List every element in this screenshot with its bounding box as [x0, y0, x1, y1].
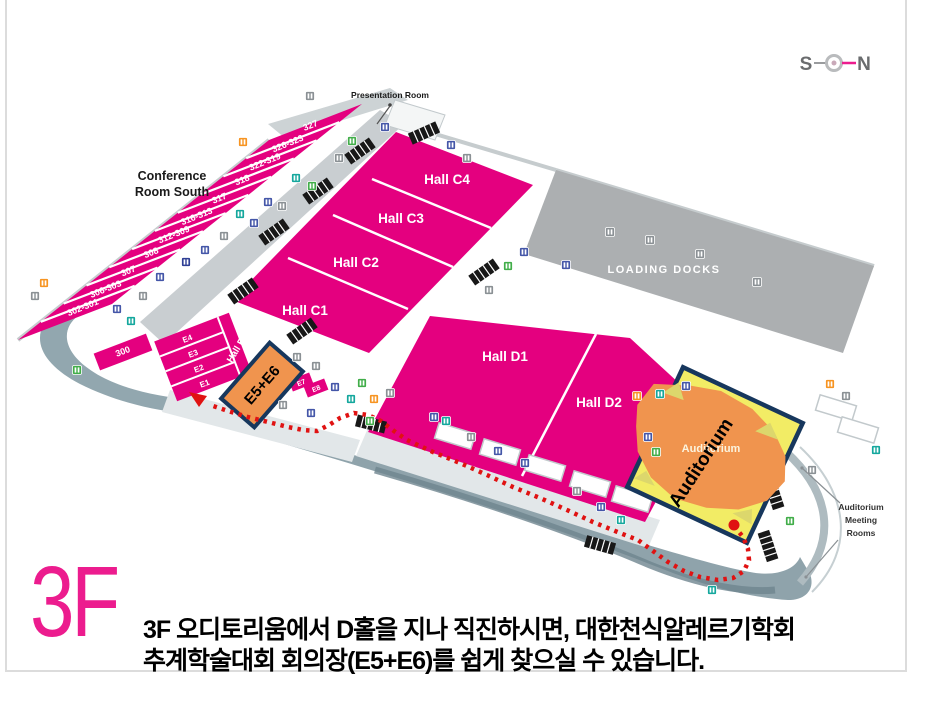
room-300-block: 300: [94, 334, 153, 371]
facility-icon-box: [73, 366, 82, 375]
facility-icon-glyph: [294, 175, 296, 180]
facility-icon-glyph: [266, 199, 268, 204]
facility-icon-glyph: [449, 142, 451, 147]
facility-icon-box: [381, 123, 390, 132]
blue-facility-icon: [331, 383, 340, 392]
gray-facility-icon: [463, 154, 472, 163]
teal-facility-icon: [872, 446, 881, 455]
facility-icon-box: [335, 154, 344, 163]
facility-icon-box: [520, 248, 529, 257]
facility-icon-box: [442, 417, 451, 426]
facility-icon-glyph: [337, 155, 339, 160]
facility-icon-box: [220, 232, 229, 241]
facility-icon-glyph: [472, 434, 474, 439]
facility-icon-box: [467, 433, 476, 442]
gray-facility-icon: [485, 286, 494, 295]
facility-icon-box: [31, 292, 40, 301]
facility-icon-glyph: [578, 488, 580, 493]
facility-icon-glyph: [661, 391, 663, 396]
conference-room-south-line1: Conference: [138, 169, 207, 183]
facility-icon-glyph: [648, 237, 650, 242]
blue-facility-icon: [562, 261, 571, 270]
facility-icon-glyph: [252, 220, 254, 225]
facility-icon-box: [504, 262, 513, 271]
green-facility-icon: [786, 517, 795, 526]
facility-icon-glyph: [283, 203, 285, 208]
gray-facility-icon: [306, 92, 315, 101]
blue-facility-icon: [307, 409, 316, 418]
green-facility-icon: [366, 417, 375, 426]
aud-meeting-rooms-line2: Meeting: [845, 515, 877, 525]
facility-icon-box: [656, 390, 665, 399]
facility-icon-glyph: [452, 142, 454, 147]
facility-icon-glyph: [391, 390, 393, 395]
orange-facility-icon: [633, 392, 642, 401]
facility-icon-box: [386, 389, 395, 398]
orange-facility-icon: [40, 279, 49, 288]
facility-icon-glyph: [386, 124, 388, 129]
facility-icon-glyph: [810, 467, 812, 472]
facility-icon-glyph: [698, 251, 700, 256]
facility-icon-box: [293, 353, 302, 362]
facility-icon-box: [250, 219, 259, 228]
facility-icon-glyph: [828, 381, 830, 386]
gray-facility-icon: [31, 292, 40, 301]
facility-icon-box: [40, 279, 49, 288]
facility-icon-box: [312, 362, 321, 371]
facility-icon-box: [279, 401, 288, 410]
facility-icon-box: [494, 447, 503, 456]
facility-icon-glyph: [847, 393, 849, 398]
green-facility-icon: [73, 366, 82, 375]
facility-icon-glyph: [788, 518, 790, 523]
facility-icon-glyph: [336, 384, 338, 389]
facility-icon-box: [521, 459, 530, 468]
facility-icon-glyph: [333, 384, 335, 389]
facility-icon-glyph: [496, 448, 498, 453]
teal-facility-icon: [442, 417, 451, 426]
facility-icon-box: [872, 446, 881, 455]
facility-icon-glyph: [144, 293, 146, 298]
facility-icon-glyph: [75, 367, 77, 372]
facility-icon-glyph: [654, 449, 656, 454]
facility-icon-box: [347, 395, 356, 404]
facility-icon-glyph: [468, 155, 470, 160]
facility-icon-box: [808, 466, 817, 475]
facility-icon-box: [307, 409, 316, 418]
facility-icon-glyph: [813, 467, 815, 472]
facility-icon-box: [682, 382, 691, 391]
facility-icon-box: [182, 258, 191, 267]
facility-icon-glyph: [222, 233, 224, 238]
facility-icon-glyph: [526, 460, 528, 465]
green-facility-icon: [358, 379, 367, 388]
facility-icon-glyph: [158, 274, 160, 279]
facility-icon-glyph: [469, 434, 471, 439]
facility-icon-box: [644, 433, 653, 442]
facility-icon-glyph: [203, 247, 205, 252]
facility-icon-glyph: [225, 233, 227, 238]
walkway-pavilion: [837, 417, 878, 443]
facility-icon-glyph: [371, 418, 373, 423]
facility-icon-box: [617, 516, 626, 525]
facility-icon-glyph: [564, 262, 566, 267]
facility-icon-box: [278, 202, 287, 211]
facility-icon-glyph: [646, 434, 648, 439]
facility-icon-box: [292, 174, 301, 183]
facility-icon-glyph: [360, 380, 362, 385]
facility-icon-box: [113, 305, 122, 314]
orange-facility-icon: [370, 395, 379, 404]
hall-c3-label: Hall C3: [378, 211, 424, 226]
facility-icon-box: [463, 154, 472, 163]
facility-icon-glyph: [33, 293, 35, 298]
facility-icon-box: [366, 417, 375, 426]
facility-icon-glyph: [368, 418, 370, 423]
facility-icon-glyph: [42, 280, 44, 285]
facility-icon-glyph: [877, 447, 879, 452]
facility-icon-box: [201, 246, 210, 255]
facility-icon-glyph: [444, 418, 446, 423]
facility-icon-box: [753, 278, 762, 287]
facility-icon-glyph: [375, 396, 377, 401]
pavilion-block: [837, 417, 878, 443]
facility-icon-box: [331, 383, 340, 392]
teal-facility-icon: [617, 516, 626, 525]
teal-facility-icon: [127, 317, 136, 326]
facility-icon-glyph: [363, 380, 365, 385]
teal-facility-icon: [347, 395, 356, 404]
facility-icon-glyph: [184, 259, 186, 264]
compass-south-label: S: [800, 54, 813, 75]
hall-c4-label: Hall C4: [424, 172, 470, 187]
aud-meeting-pointer-dot-1: [800, 466, 803, 469]
facility-icon-glyph: [298, 354, 300, 359]
facility-icon-glyph: [619, 517, 621, 522]
facility-icon-box: [696, 250, 705, 259]
facility-icon-glyph: [506, 263, 508, 268]
hall-c2-label: Hall C2: [333, 255, 379, 270]
green-facility-icon: [308, 182, 317, 191]
gray-facility-icon: [573, 487, 582, 496]
facility-icon-glyph: [622, 517, 624, 522]
slide-frame-left: [5, 0, 7, 671]
facility-icon-glyph: [611, 229, 613, 234]
blue-facility-icon: [521, 459, 530, 468]
facility-icon-glyph: [432, 414, 434, 419]
aud-meeting-rooms-line1: Auditorium: [838, 502, 884, 512]
blue-facility-icon: [494, 447, 503, 456]
facility-icon-glyph: [522, 249, 524, 254]
gray-facility-icon: [696, 250, 705, 259]
facility-icon-glyph: [687, 383, 689, 388]
facility-icon-glyph: [350, 138, 352, 143]
compass: S N: [800, 54, 871, 75]
facility-icon-box: [708, 586, 717, 595]
facility-icon-glyph: [435, 414, 437, 419]
teal-facility-icon: [656, 390, 665, 399]
facility-icon-glyph: [684, 383, 686, 388]
facility-icon-glyph: [118, 306, 120, 311]
facility-icon-glyph: [187, 259, 189, 264]
navy-facility-icon: [182, 258, 191, 267]
facility-icon-glyph: [78, 367, 80, 372]
compass-north-label: N: [857, 54, 871, 75]
gray-facility-icon: [606, 228, 615, 237]
facility-icon-box: [308, 182, 317, 191]
facility-icon-box: [430, 413, 439, 422]
facility-icon-glyph: [791, 518, 793, 523]
gray-facility-icon: [386, 389, 395, 398]
blue-facility-icon: [682, 382, 691, 391]
route-start-dot: [729, 520, 740, 531]
facility-icon-glyph: [525, 249, 527, 254]
facility-icon-glyph: [309, 410, 311, 415]
blue-facility-icon: [597, 503, 606, 512]
facility-icon-glyph: [388, 390, 390, 395]
facility-icon-glyph: [602, 504, 604, 509]
facility-icon-glyph: [244, 139, 246, 144]
facility-icon-box: [306, 92, 315, 101]
facility-icon-glyph: [269, 199, 271, 204]
caption-text: 3F 오디토리움에서 D홀을 지나 직진하시면, 대한천식알레르기학회 추계학술…: [143, 615, 913, 677]
facility-icon-glyph: [758, 279, 760, 284]
slide-frame-right: [905, 0, 907, 671]
facility-icon-box: [826, 380, 835, 389]
gray-facility-icon: [646, 236, 655, 245]
facility-icon-glyph: [499, 448, 501, 453]
facility-icon-box: [236, 210, 245, 219]
hall-d2-label: Hall D2: [576, 395, 622, 410]
facility-icon-box: [447, 141, 456, 150]
conference-room-south-line2: Room South: [135, 185, 209, 199]
facility-icon-glyph: [314, 363, 316, 368]
blue-facility-icon: [250, 219, 259, 228]
caption-line2: 추계학술대회 회의장(E5+E6)를 쉽게 찾으실 수 있습니다.: [143, 646, 913, 677]
escalator-icon: [468, 258, 499, 285]
presentation-room-label: Presentation Room: [351, 90, 429, 100]
facility-icon-glyph: [132, 318, 134, 323]
facility-icon-glyph: [635, 393, 637, 398]
gray-facility-icon: [139, 292, 148, 301]
facility-icon-glyph: [255, 220, 257, 225]
facility-icon-box: [606, 228, 615, 237]
gray-facility-icon: [753, 278, 762, 287]
facility-icon-box: [646, 236, 655, 245]
facility-icon-glyph: [608, 229, 610, 234]
facility-icon-glyph: [844, 393, 846, 398]
facility-icon-glyph: [651, 237, 653, 242]
caption-line1: 3F 오디토리움에서 D홀을 지나 직진하시면, 대한천식알레르기학회: [143, 615, 913, 646]
escalator-icon: [758, 530, 779, 562]
aud-meeting-pointer-dot-2: [804, 575, 807, 578]
facility-icon-glyph: [831, 381, 833, 386]
facility-icon-glyph: [308, 93, 310, 98]
facility-icon-glyph: [353, 138, 355, 143]
facility-icon-glyph: [297, 175, 299, 180]
teal-facility-icon: [236, 210, 245, 219]
facility-icon-box: [633, 392, 642, 401]
facility-icon-box: [573, 487, 582, 496]
facility-icon-box: [370, 395, 379, 404]
green-facility-icon: [348, 137, 357, 146]
blue-facility-icon: [381, 123, 390, 132]
facility-icon-glyph: [349, 396, 351, 401]
gray-facility-icon: [279, 401, 288, 410]
blue-facility-icon: [264, 198, 273, 207]
facility-icon-glyph: [874, 447, 876, 452]
gray-facility-icon: [808, 466, 817, 475]
facility-icon-glyph: [45, 280, 47, 285]
facility-icon-glyph: [129, 318, 131, 323]
teal-facility-icon: [708, 586, 717, 595]
facility-icon-glyph: [161, 274, 163, 279]
facility-icon-glyph: [649, 434, 651, 439]
gray-facility-icon: [312, 362, 321, 371]
facility-icon-box: [597, 503, 606, 512]
facility-icon-box: [127, 317, 136, 326]
escalator-body: [468, 258, 499, 285]
facility-icon-box: [842, 392, 851, 401]
facility-icon-glyph: [310, 183, 312, 188]
facility-icon-glyph: [284, 402, 286, 407]
orange-facility-icon: [239, 138, 248, 147]
facility-icon-glyph: [523, 460, 525, 465]
orange-facility-icon: [826, 380, 835, 389]
blue-facility-icon: [201, 246, 210, 255]
facility-icon-box: [562, 261, 571, 270]
facility-icon-glyph: [340, 155, 342, 160]
blue-facility-icon: [430, 413, 439, 422]
facility-icon-glyph: [280, 203, 282, 208]
facility-icon-glyph: [115, 306, 117, 311]
facility-icon-box: [139, 292, 148, 301]
facility-icon-glyph: [465, 155, 467, 160]
loading-docks-block: LOADING DOCKS: [524, 170, 874, 353]
compass-center-dot: [832, 61, 837, 66]
facility-icon-glyph: [658, 391, 660, 396]
facility-icon-glyph: [657, 449, 659, 454]
facility-icon-glyph: [490, 287, 492, 292]
green-facility-icon: [652, 448, 661, 457]
gray-facility-icon: [335, 154, 344, 163]
facility-icon-glyph: [295, 354, 297, 359]
blue-facility-icon: [113, 305, 122, 314]
facility-icon-box: [652, 448, 661, 457]
loading-docks-label: LOADING DOCKS: [608, 264, 721, 276]
gray-facility-icon: [842, 392, 851, 401]
facility-icon-glyph: [755, 279, 757, 284]
blue-facility-icon: [447, 141, 456, 150]
gray-facility-icon: [467, 433, 476, 442]
facility-icon-glyph: [352, 396, 354, 401]
facility-icon-glyph: [281, 402, 283, 407]
facility-icon-glyph: [238, 211, 240, 216]
facility-icon-box: [485, 286, 494, 295]
gray-facility-icon: [220, 232, 229, 241]
blue-facility-icon: [520, 248, 529, 257]
gray-facility-icon: [293, 353, 302, 362]
facility-icon-glyph: [701, 251, 703, 256]
facility-icon-glyph: [713, 587, 715, 592]
facility-icon-box: [264, 198, 273, 207]
facility-icon-box: [786, 517, 795, 526]
blue-facility-icon: [156, 273, 165, 282]
facility-icon-glyph: [206, 247, 208, 252]
green-facility-icon: [504, 262, 513, 271]
facility-icon-glyph: [575, 488, 577, 493]
facility-icon-glyph: [313, 183, 315, 188]
facility-icon-glyph: [383, 124, 385, 129]
escalator-body: [758, 530, 779, 562]
teal-facility-icon: [292, 174, 301, 183]
aud-meeting-rooms-line3: Rooms: [847, 528, 876, 538]
facility-icon-glyph: [599, 504, 601, 509]
facility-icon-glyph: [487, 287, 489, 292]
hall-d1-label: Hall D1: [482, 349, 528, 364]
facility-icon-glyph: [36, 293, 38, 298]
facility-icon-box: [358, 379, 367, 388]
facility-icon-glyph: [509, 263, 511, 268]
loading-docks-area: [524, 170, 874, 353]
gray-facility-icon: [278, 202, 287, 211]
facility-icon-box: [239, 138, 248, 147]
facility-icon-glyph: [141, 293, 143, 298]
facility-icon-glyph: [311, 93, 313, 98]
floor-badge: 3F: [30, 552, 117, 652]
facility-icon-glyph: [241, 211, 243, 216]
facility-icon-box: [156, 273, 165, 282]
floorplan-map: 327326-323322-319318317316-313312-309308…: [0, 0, 942, 703]
facility-icon-glyph: [447, 418, 449, 423]
facility-icon-glyph: [317, 363, 319, 368]
facility-icon-glyph: [710, 587, 712, 592]
blue-facility-icon: [644, 433, 653, 442]
facility-icon-glyph: [312, 410, 314, 415]
facility-icon-glyph: [372, 396, 374, 401]
facility-icon-glyph: [241, 139, 243, 144]
facility-icon-glyph: [567, 262, 569, 267]
hall-c1-label: Hall C1: [282, 303, 328, 318]
facility-icon-box: [348, 137, 357, 146]
facility-icon-glyph: [638, 393, 640, 398]
